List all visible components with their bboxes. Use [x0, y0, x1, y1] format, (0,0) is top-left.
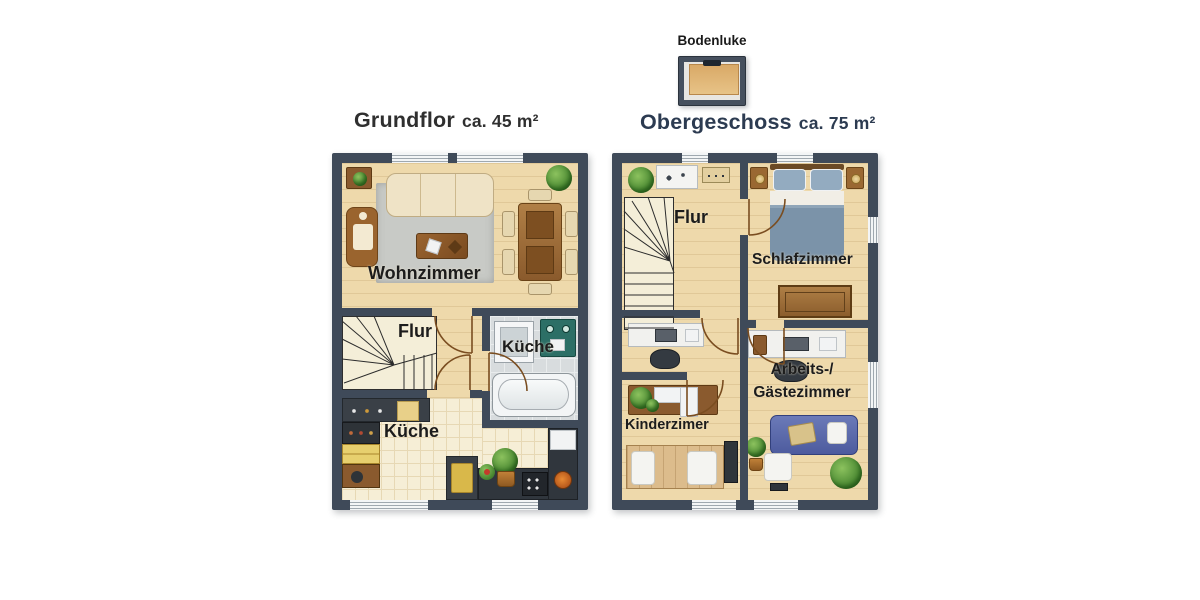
armchair-cushion [353, 224, 373, 250]
ground-floor-plan: Wohnzimmer Flur Küche Küche [332, 153, 588, 510]
guest-side-table [764, 453, 792, 481]
dresser-panel [785, 292, 845, 312]
kids-bed-blanket [687, 451, 717, 485]
hall-plant [628, 167, 654, 193]
kitchen-cabinet [342, 464, 380, 488]
window [490, 500, 540, 510]
nook-desk [628, 323, 704, 347]
nook-monitor [655, 329, 677, 342]
label-flur-ground: Flur [398, 321, 432, 342]
kitchen-shelf-bottles [342, 422, 380, 444]
window [775, 153, 815, 163]
wall-segment [470, 390, 482, 398]
sofa-pillow [827, 422, 847, 444]
hall-shelf [702, 167, 730, 183]
dining-chair [528, 283, 552, 295]
bedroom-dresser [778, 285, 852, 318]
frying-pan [554, 471, 572, 489]
desk-drawer [753, 335, 767, 355]
wall-segment [482, 316, 490, 351]
dining-table-setting [526, 211, 554, 239]
guest-plant-pot [749, 458, 763, 471]
washer-dial [546, 325, 554, 333]
kitchen-stool [451, 463, 473, 493]
wall-segment [784, 320, 868, 328]
wall-segment [482, 420, 578, 428]
floorplan-canvas: Bodenluke Grundflorca. 45 m² Obergeschos… [0, 0, 1200, 600]
dining-table [518, 203, 562, 281]
dining-chair [502, 211, 515, 237]
window [680, 153, 710, 163]
coffee-table [416, 233, 468, 259]
label-arbeitszimmer-line1: Arbeits-/ [744, 361, 860, 379]
dining-chair [565, 211, 578, 237]
office-monitor [783, 337, 809, 351]
kids-desk-return [680, 387, 698, 417]
guest-side-table-base [770, 483, 788, 491]
dining-chair [502, 249, 515, 275]
nook-office-chair [650, 349, 680, 369]
bathtub [492, 373, 576, 417]
bodenluke-hatch-handle [703, 60, 721, 66]
bedside-lamp [851, 174, 861, 184]
kids-bed [626, 445, 724, 489]
wall-segment [622, 372, 687, 380]
armchair [346, 207, 378, 267]
kitchen-plant-pot [497, 471, 515, 487]
dining-table-setting [526, 246, 554, 274]
window [390, 153, 450, 163]
wall-segment [482, 391, 490, 420]
label-wohnzimmer: Wohnzimmer [368, 263, 481, 284]
upper-floor-title: Obergeschossca. 75 m² [640, 110, 876, 135]
label-arbeitszimmer-line2: Gästezimmer [744, 384, 860, 402]
stove-hob [522, 472, 548, 496]
corner-plant [546, 165, 572, 191]
coffee-table-decor [448, 240, 462, 254]
counter-appliances [349, 407, 389, 415]
nook-papers [685, 329, 699, 342]
office-papers [819, 337, 837, 351]
coffee-table-item [425, 238, 441, 254]
dining-chair [528, 189, 552, 201]
tomato [484, 469, 490, 475]
label-kinderzimmer: Kinderzimer [625, 417, 709, 433]
window [752, 500, 800, 510]
window [868, 215, 878, 245]
side-cabinet [346, 167, 372, 189]
potted-plant [353, 172, 367, 186]
window [868, 360, 878, 410]
guest-plant-small [746, 437, 766, 457]
upper-floor-title-area: ca. 75 m² [799, 113, 876, 133]
ground-floor-title-area: ca. 45 m² [462, 111, 539, 131]
dining-chair [565, 249, 578, 275]
sofa [386, 173, 494, 217]
nightstand [846, 167, 864, 189]
office-desk [748, 330, 846, 358]
sofa-cushion [787, 422, 816, 446]
bedside-lamp [755, 174, 765, 184]
cutting-board [397, 401, 419, 421]
ground-floor-title: Grundflorca. 45 m² [354, 108, 539, 133]
kitchen-drawers [342, 444, 380, 464]
wall-segment [622, 310, 700, 318]
wall-segment [342, 390, 427, 398]
window [455, 153, 525, 163]
kids-plant-small [646, 399, 659, 412]
label-kueche: Küche [384, 421, 439, 442]
window [348, 500, 430, 510]
hall-washbasin [656, 165, 698, 189]
window [690, 500, 738, 510]
pillow [773, 169, 806, 191]
cabinet-knob [351, 471, 363, 483]
wall-segment [748, 320, 756, 328]
kids-bed-pillow [631, 451, 655, 485]
kitchen-sink [550, 430, 576, 450]
nightstand [750, 167, 768, 189]
kitchen-counter-top [342, 398, 430, 422]
bodenluke-hatch [678, 56, 746, 106]
label-flur-upper: Flur [674, 207, 708, 228]
bodenluke-hatch-panel [689, 64, 739, 95]
upper-floor-title-name: Obergeschoss [640, 110, 792, 134]
wall-segment [342, 308, 432, 316]
kids-wardrobe [724, 441, 738, 483]
armchair-pillow [359, 212, 367, 220]
label-schlafzimmer: Schlafzimmer [752, 251, 853, 269]
ground-floor-title-name: Grundflor [354, 108, 455, 132]
wall-segment [740, 163, 748, 199]
bathtub-basin [498, 379, 569, 410]
washer-dial [562, 325, 570, 333]
upper-floor-plan: Flur Schlafzimmer Arbeits-/ Gästezimmer … [612, 153, 878, 510]
wall-segment [472, 308, 578, 316]
pillow [810, 169, 843, 191]
guest-plant-large [830, 457, 862, 489]
guest-sofa [770, 415, 858, 455]
label-bad: Küche [502, 337, 554, 357]
bodenluke-label: Bodenluke [664, 33, 760, 48]
